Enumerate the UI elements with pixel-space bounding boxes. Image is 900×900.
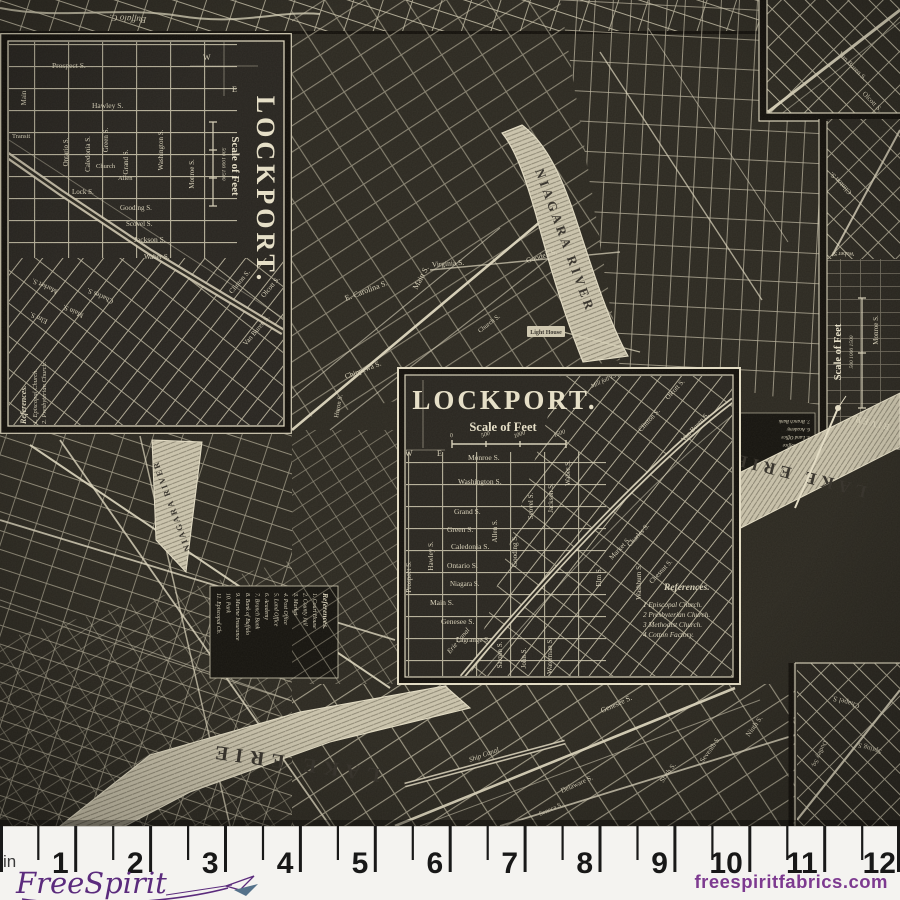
ruler-number: 5 [352, 847, 369, 880]
ruler-number: 6 [427, 847, 444, 880]
ruler: in 1 2 3 4 5 6 7 8 9 10 11 12 FreeSpirit… [0, 826, 900, 900]
freespirit-logo-text: FreeSpirit [15, 866, 167, 900]
ruler-number: 7 [501, 847, 518, 880]
fabric-vignette [0, 0, 900, 826]
ruler-number: 9 [651, 847, 668, 880]
ruler-number: 8 [576, 847, 593, 880]
fabric-swatch-image: Buffalo C. NIAGARA RIVER Light House Vir… [0, 0, 900, 900]
ruler-unit-label: in [3, 852, 16, 871]
fabric-print: Buffalo C. NIAGARA RIVER Light House Vir… [0, 0, 900, 826]
ruler-graphic: in 1 2 3 4 5 6 7 8 9 10 11 12 FreeSpirit… [0, 826, 900, 900]
website-url: freespiritfabrics.com [694, 871, 888, 892]
ruler-number: 4 [277, 847, 294, 880]
ruler-number: 3 [202, 847, 219, 880]
